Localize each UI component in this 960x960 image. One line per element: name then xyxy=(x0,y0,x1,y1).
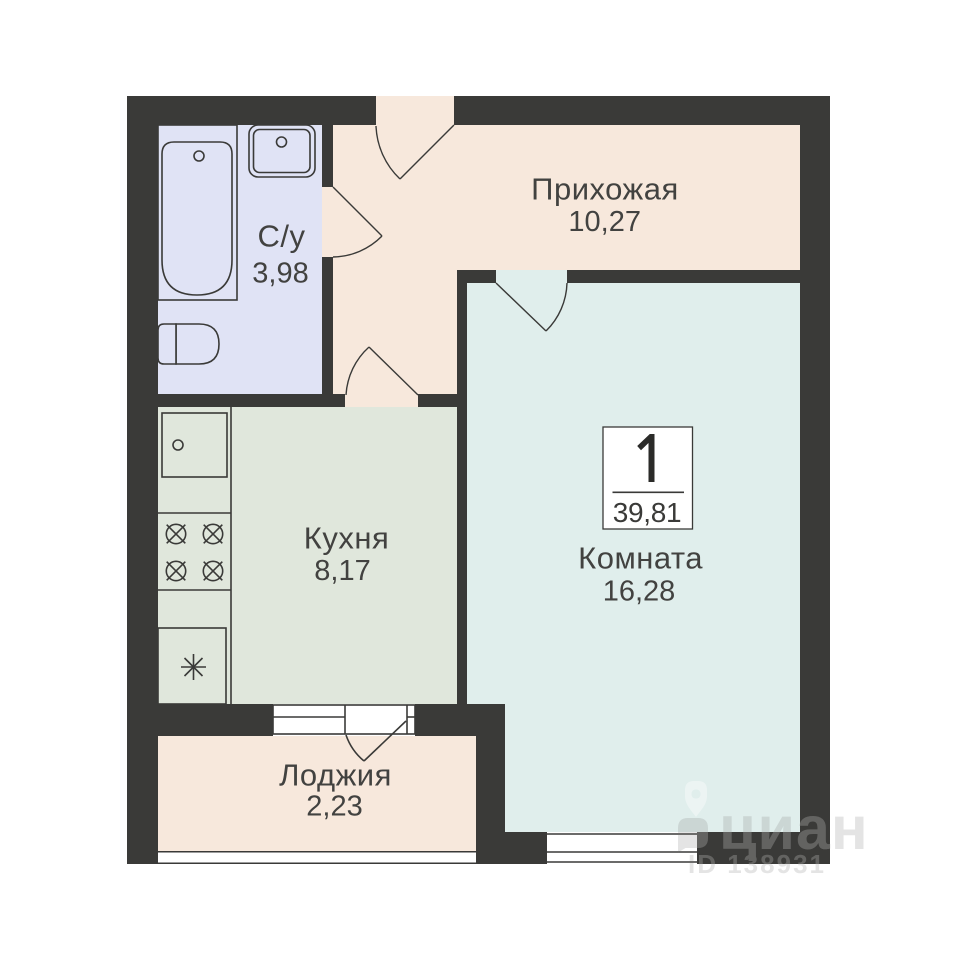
svg-text:2,23: 2,23 xyxy=(306,791,362,823)
svg-text:Кухня: Кухня xyxy=(304,521,389,556)
svg-text:10,27: 10,27 xyxy=(568,206,641,238)
svg-text:Прихожая: Прихожая xyxy=(531,172,679,207)
svg-text:Лоджия: Лоджия xyxy=(279,758,392,793)
svg-text:3,98: 3,98 xyxy=(252,258,308,290)
svg-text:С/у: С/у xyxy=(258,219,306,254)
svg-text:Комната: Комната xyxy=(578,541,703,576)
svg-text:16,28: 16,28 xyxy=(603,576,676,608)
svg-text:8,17: 8,17 xyxy=(314,555,370,587)
svg-text:39,81: 39,81 xyxy=(613,497,682,528)
